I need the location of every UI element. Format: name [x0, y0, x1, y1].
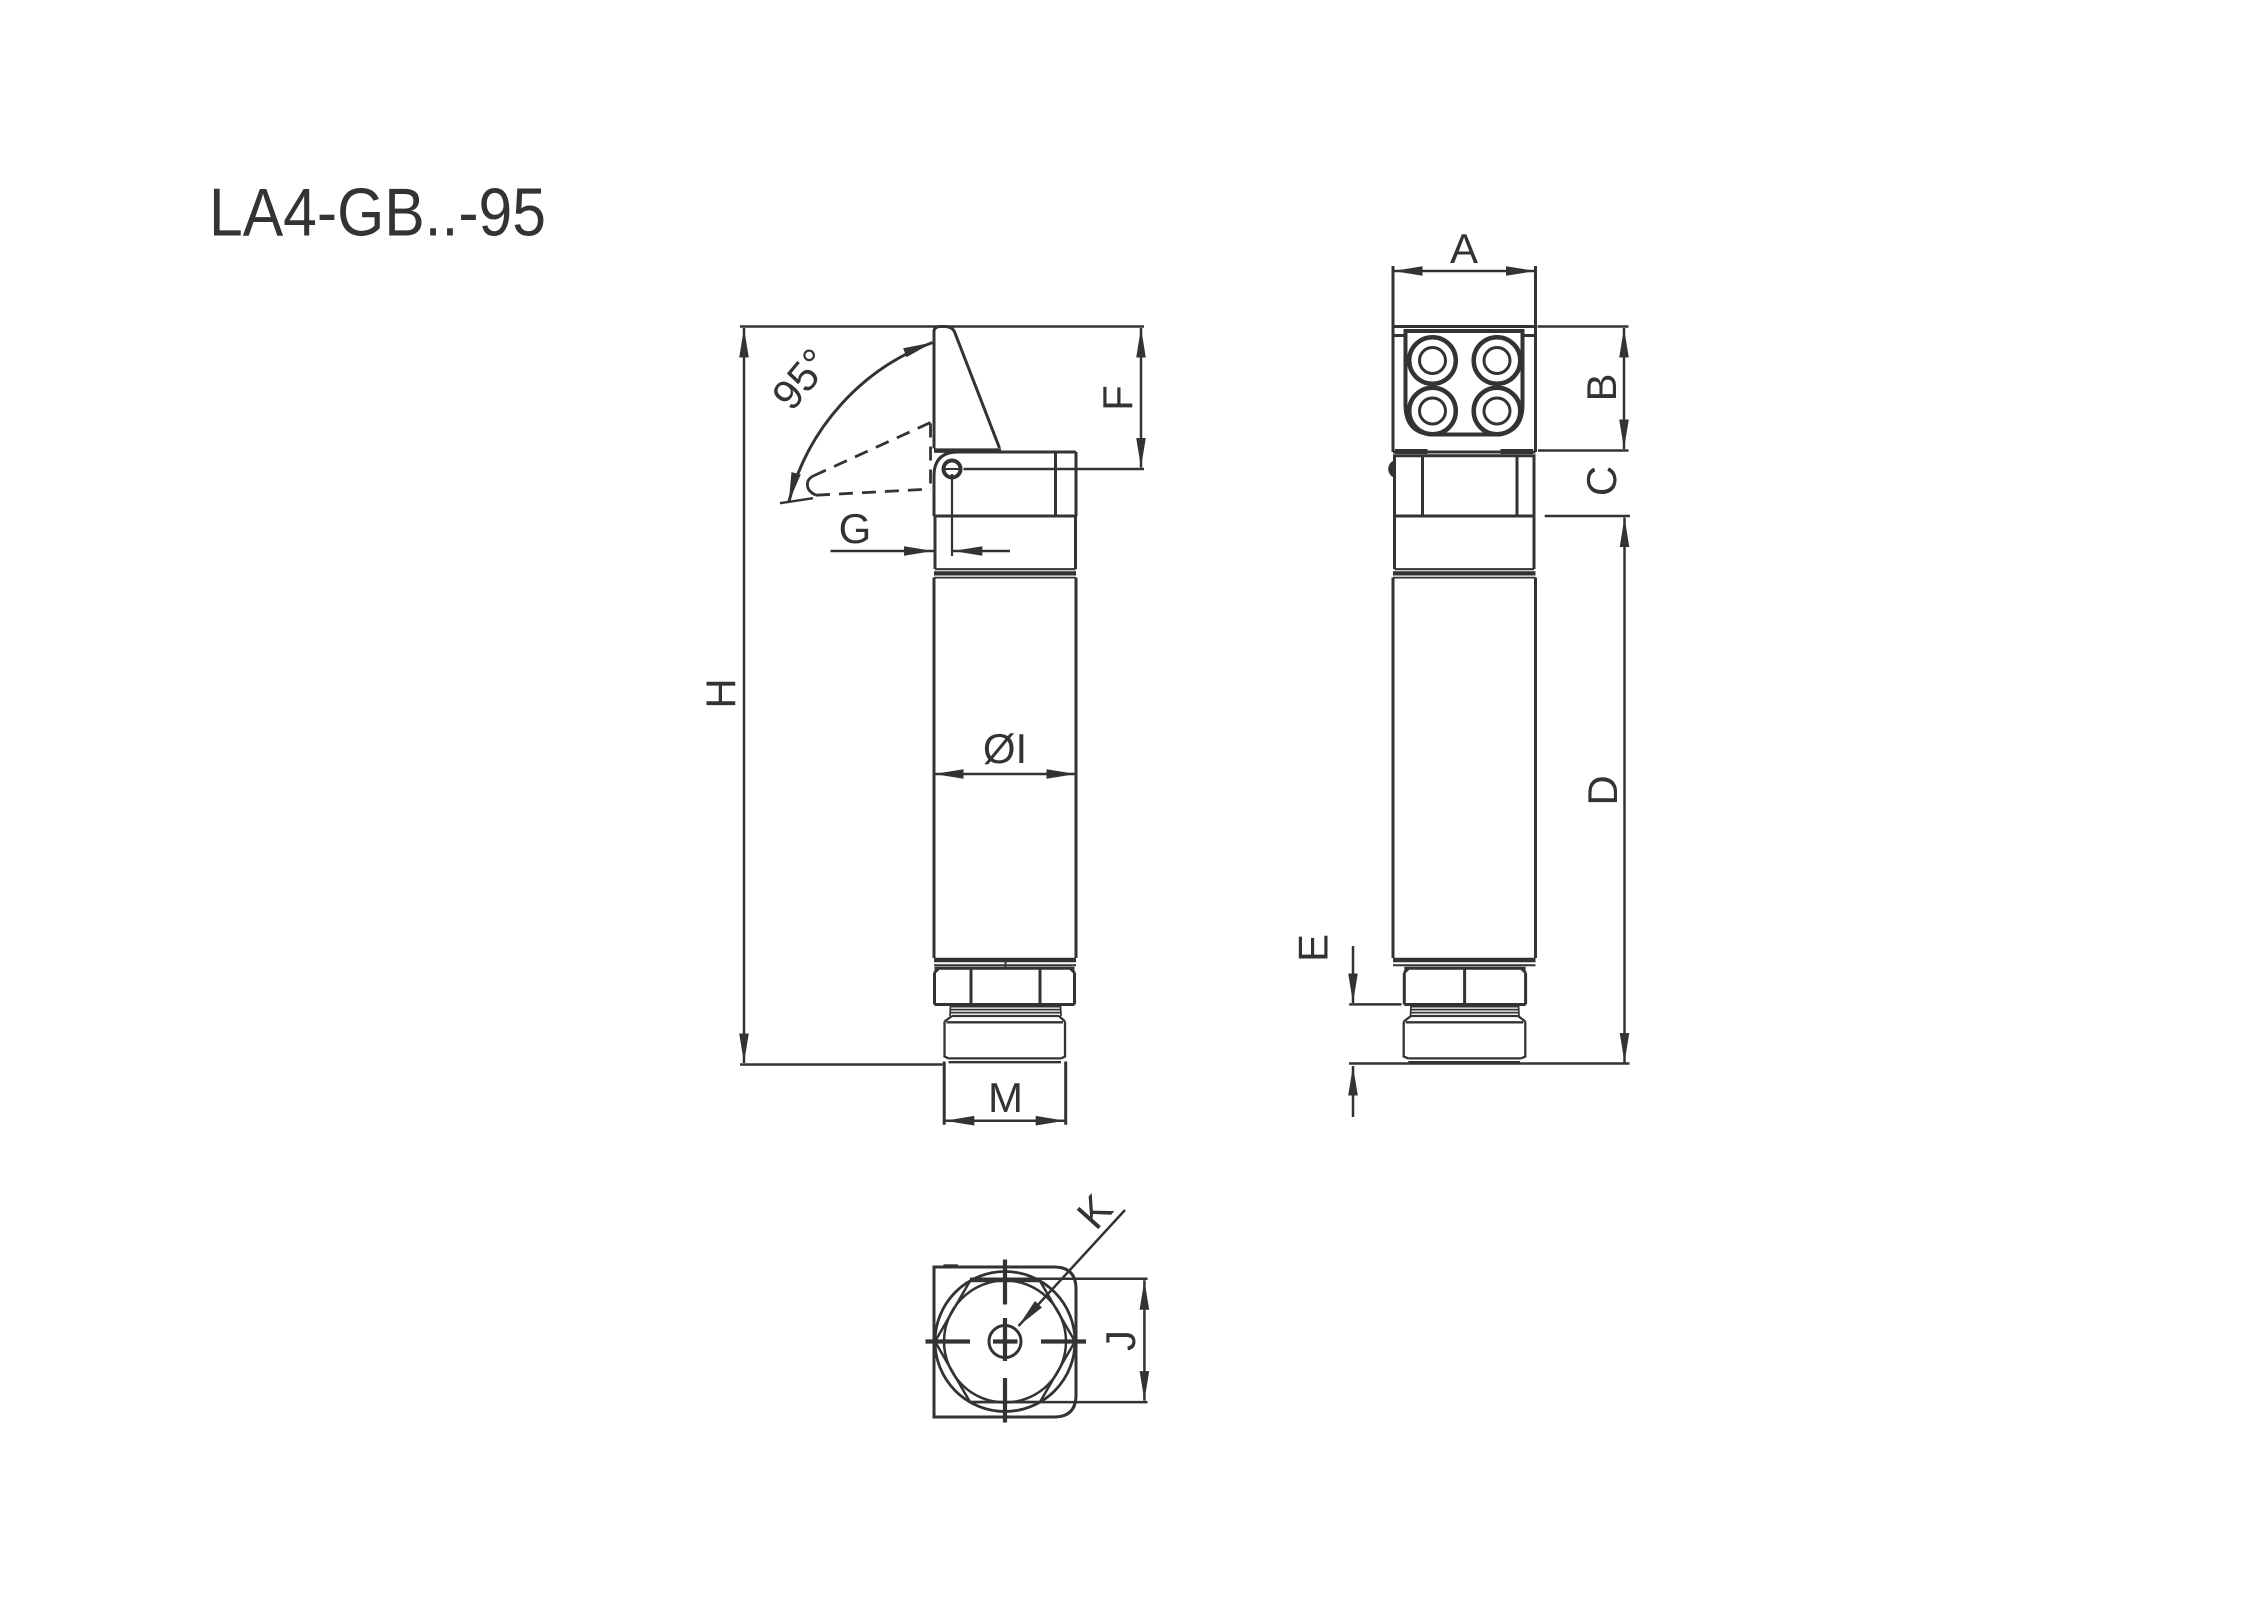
svg-text:J: J: [1097, 1330, 1144, 1351]
svg-text:E: E: [1290, 934, 1337, 962]
svg-text:ØI: ØI: [983, 725, 1027, 772]
svg-text:M: M: [988, 1074, 1023, 1121]
svg-text:LA4-GB..-95: LA4-GB..-95: [209, 175, 546, 251]
svg-text:D: D: [1579, 775, 1626, 805]
svg-text:G: G: [839, 505, 872, 552]
svg-text:A: A: [1450, 225, 1478, 272]
svg-text:95°: 95°: [763, 340, 840, 419]
svg-text:H: H: [698, 678, 745, 708]
svg-text:B: B: [1578, 373, 1625, 401]
svg-text:C: C: [1578, 466, 1625, 496]
svg-text:F: F: [1094, 385, 1141, 411]
svg-text:K: K: [1068, 1185, 1122, 1237]
